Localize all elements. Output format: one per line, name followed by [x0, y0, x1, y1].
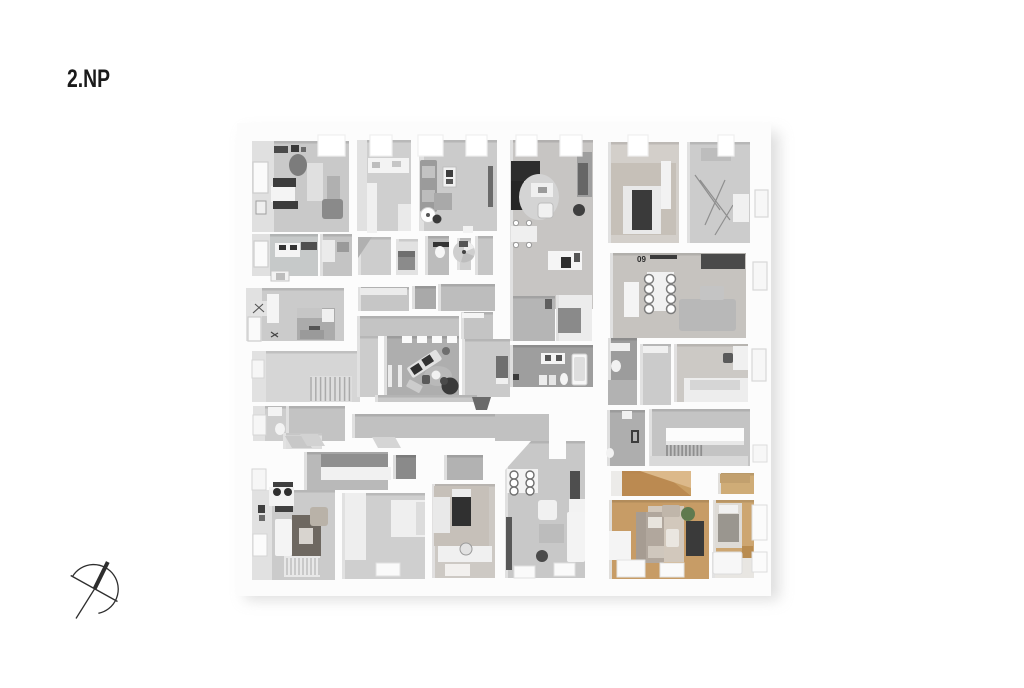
- svg-text:2.NP: 2.NP: [67, 65, 110, 93]
- svg-text:09: 09: [637, 255, 646, 264]
